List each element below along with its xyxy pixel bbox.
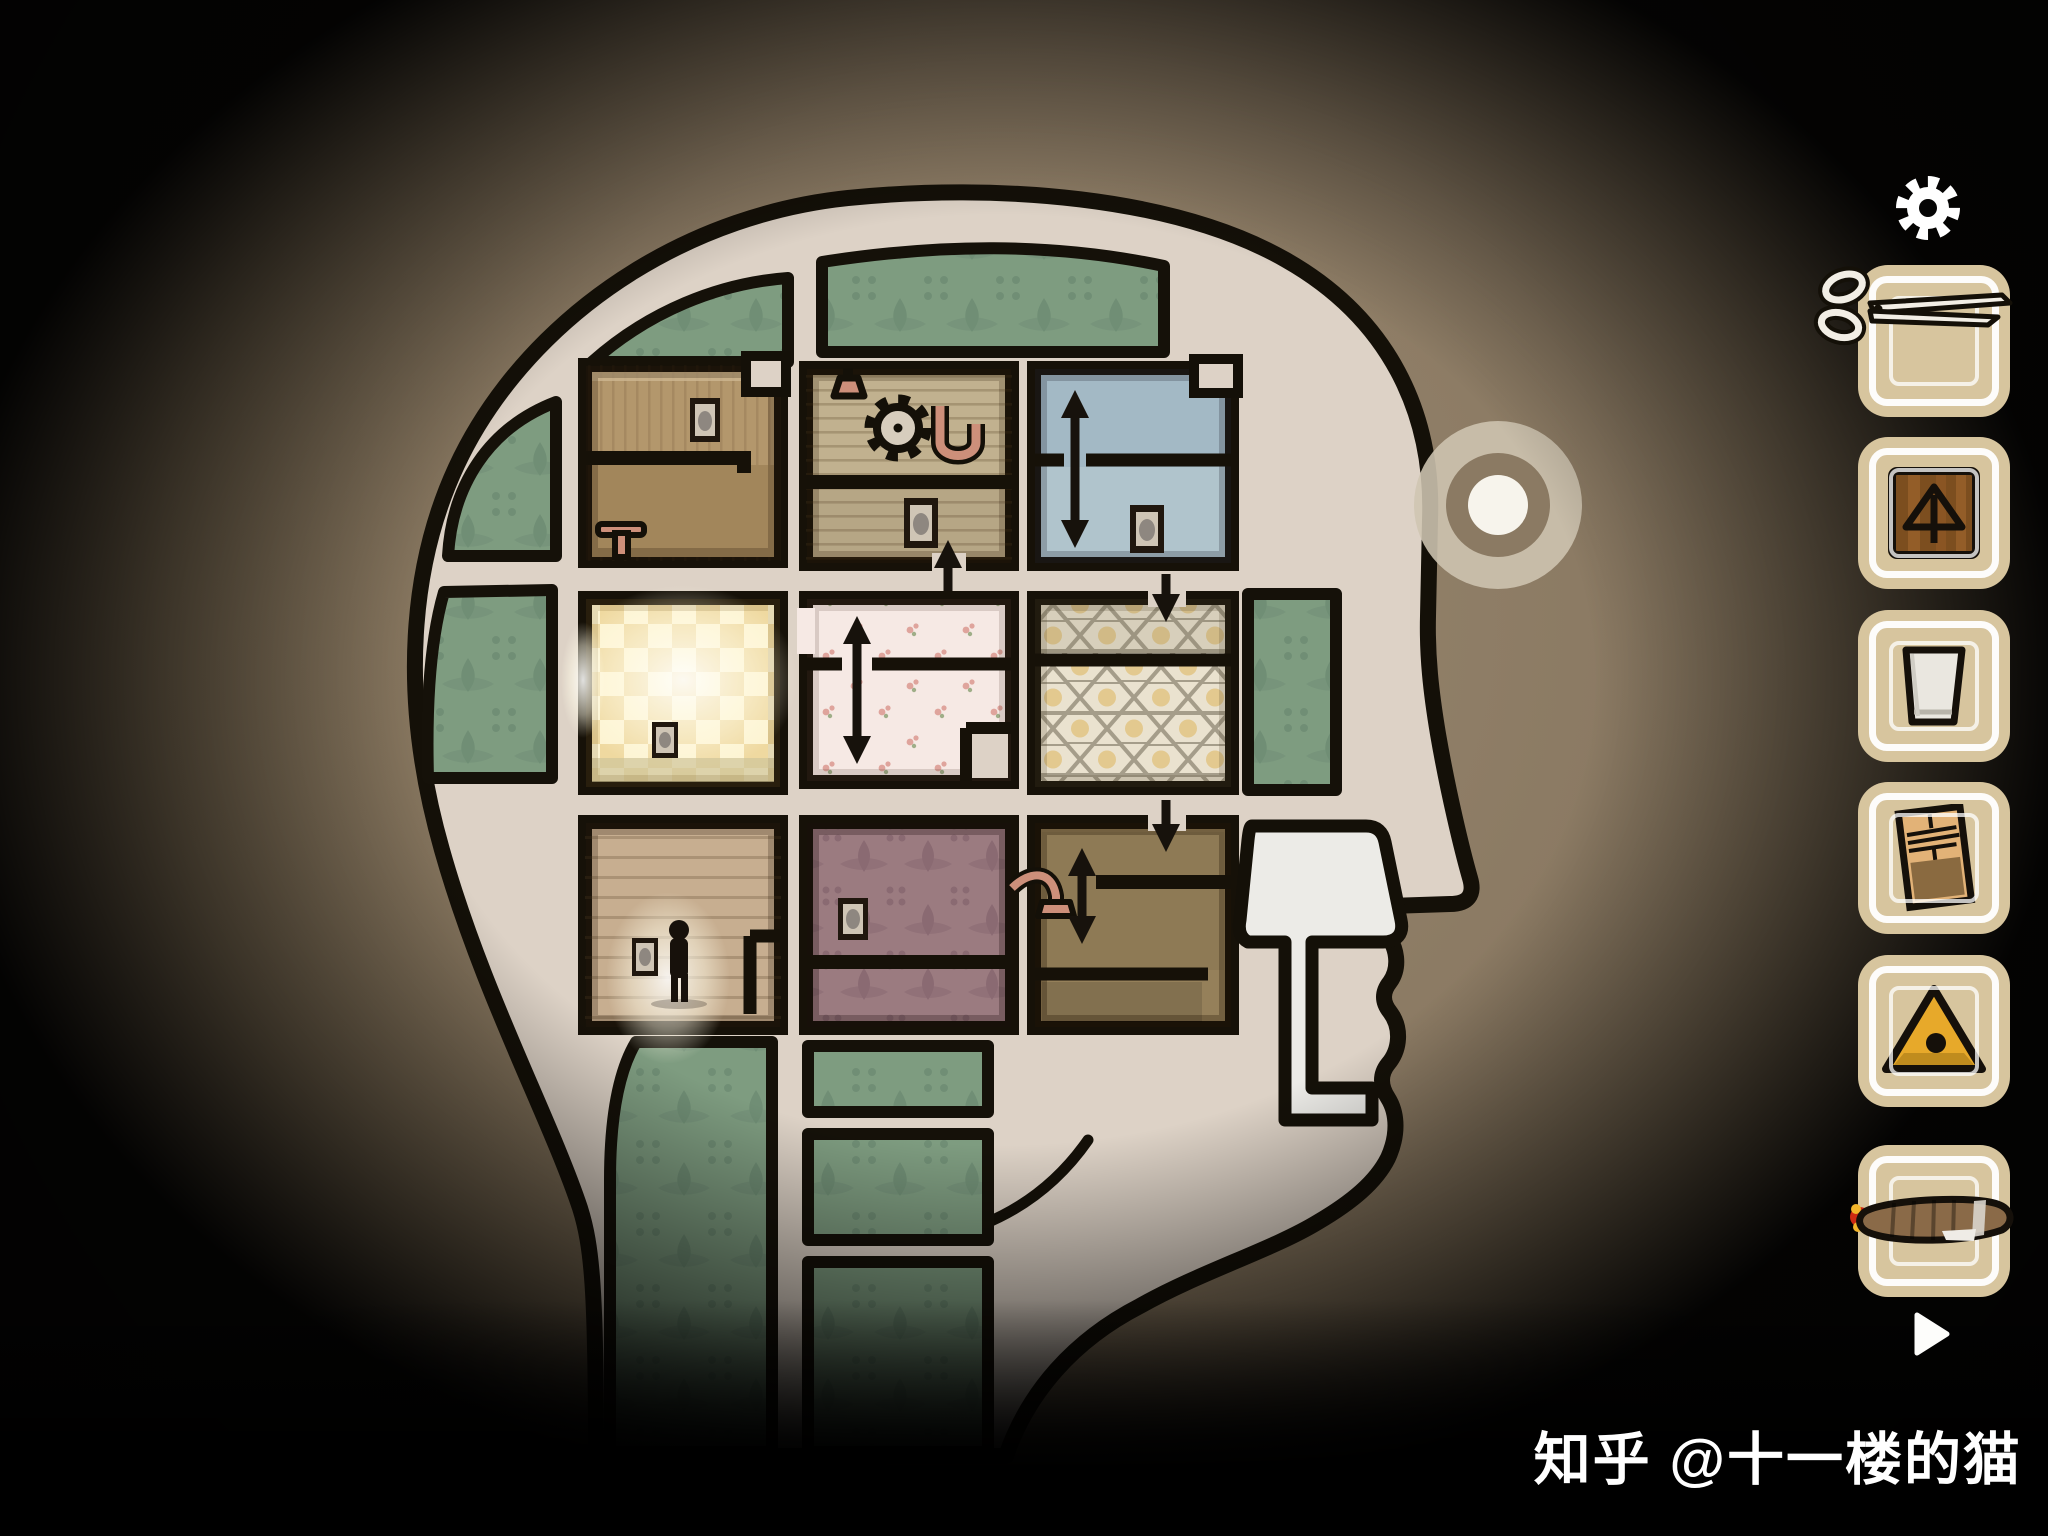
inventory-slot-document[interactable] (1858, 782, 2010, 934)
picture-frame (904, 498, 938, 548)
scissors-icon (1812, 267, 2022, 351)
room-middle-left[interactable] (561, 585, 798, 788)
wall-panel (610, 1042, 772, 1452)
inventory-slot-glass[interactable] (1858, 610, 2010, 762)
inventory-slot-scissors[interactable] (1858, 265, 2010, 417)
wall-panel (808, 1262, 988, 1452)
play-arrow-icon[interactable] (1912, 1310, 1952, 1358)
wall-notch (746, 356, 786, 392)
picture-frame (632, 938, 658, 976)
picture-frame (1130, 505, 1164, 553)
picture-frame (690, 398, 720, 442)
room-bottom-middle[interactable] (806, 822, 1012, 1028)
light-spill (561, 622, 605, 738)
wooden-box-icon (1884, 463, 1984, 563)
spotlight-glow (606, 892, 730, 1064)
wall-panel (822, 248, 1164, 352)
room-middle-middle[interactable] (797, 598, 1012, 782)
wall-notch (1194, 359, 1238, 393)
picture-frame (652, 722, 678, 758)
inventory-slot-box[interactable] (1858, 437, 2010, 589)
picture-frame (838, 898, 868, 940)
room-top-left[interactable] (585, 356, 786, 561)
cigar-icon (1846, 1185, 2022, 1257)
room-top-right[interactable] (1034, 359, 1238, 564)
wall-panel (808, 1046, 988, 1112)
watermark-text: 知乎 @十一楼的猫 (1534, 1414, 2022, 1496)
wall-opening (797, 608, 815, 654)
head-map-scene (0, 0, 2048, 1536)
document-icon (1880, 804, 1988, 912)
inventory-slot-cigar[interactable] (1858, 1145, 2010, 1297)
wall-panel (1248, 594, 1336, 790)
room-middle-right[interactable] (1034, 574, 1232, 788)
settings-gear-icon[interactable] (1888, 168, 1968, 248)
game-screen: 知乎 @十一楼的猫 (0, 0, 2048, 1536)
glass-icon (1886, 638, 1982, 734)
room-bottom-left[interactable] (585, 822, 786, 1064)
wall-panel (808, 1134, 988, 1240)
ear-marker[interactable] (1414, 421, 1582, 589)
wall-panel (428, 590, 552, 778)
wall-notch (972, 734, 1008, 778)
room-bottom-right[interactable] (1012, 800, 1232, 1028)
triangle-token-icon (1878, 977, 1990, 1085)
inventory-slot-triangle[interactable] (1858, 955, 2010, 1107)
